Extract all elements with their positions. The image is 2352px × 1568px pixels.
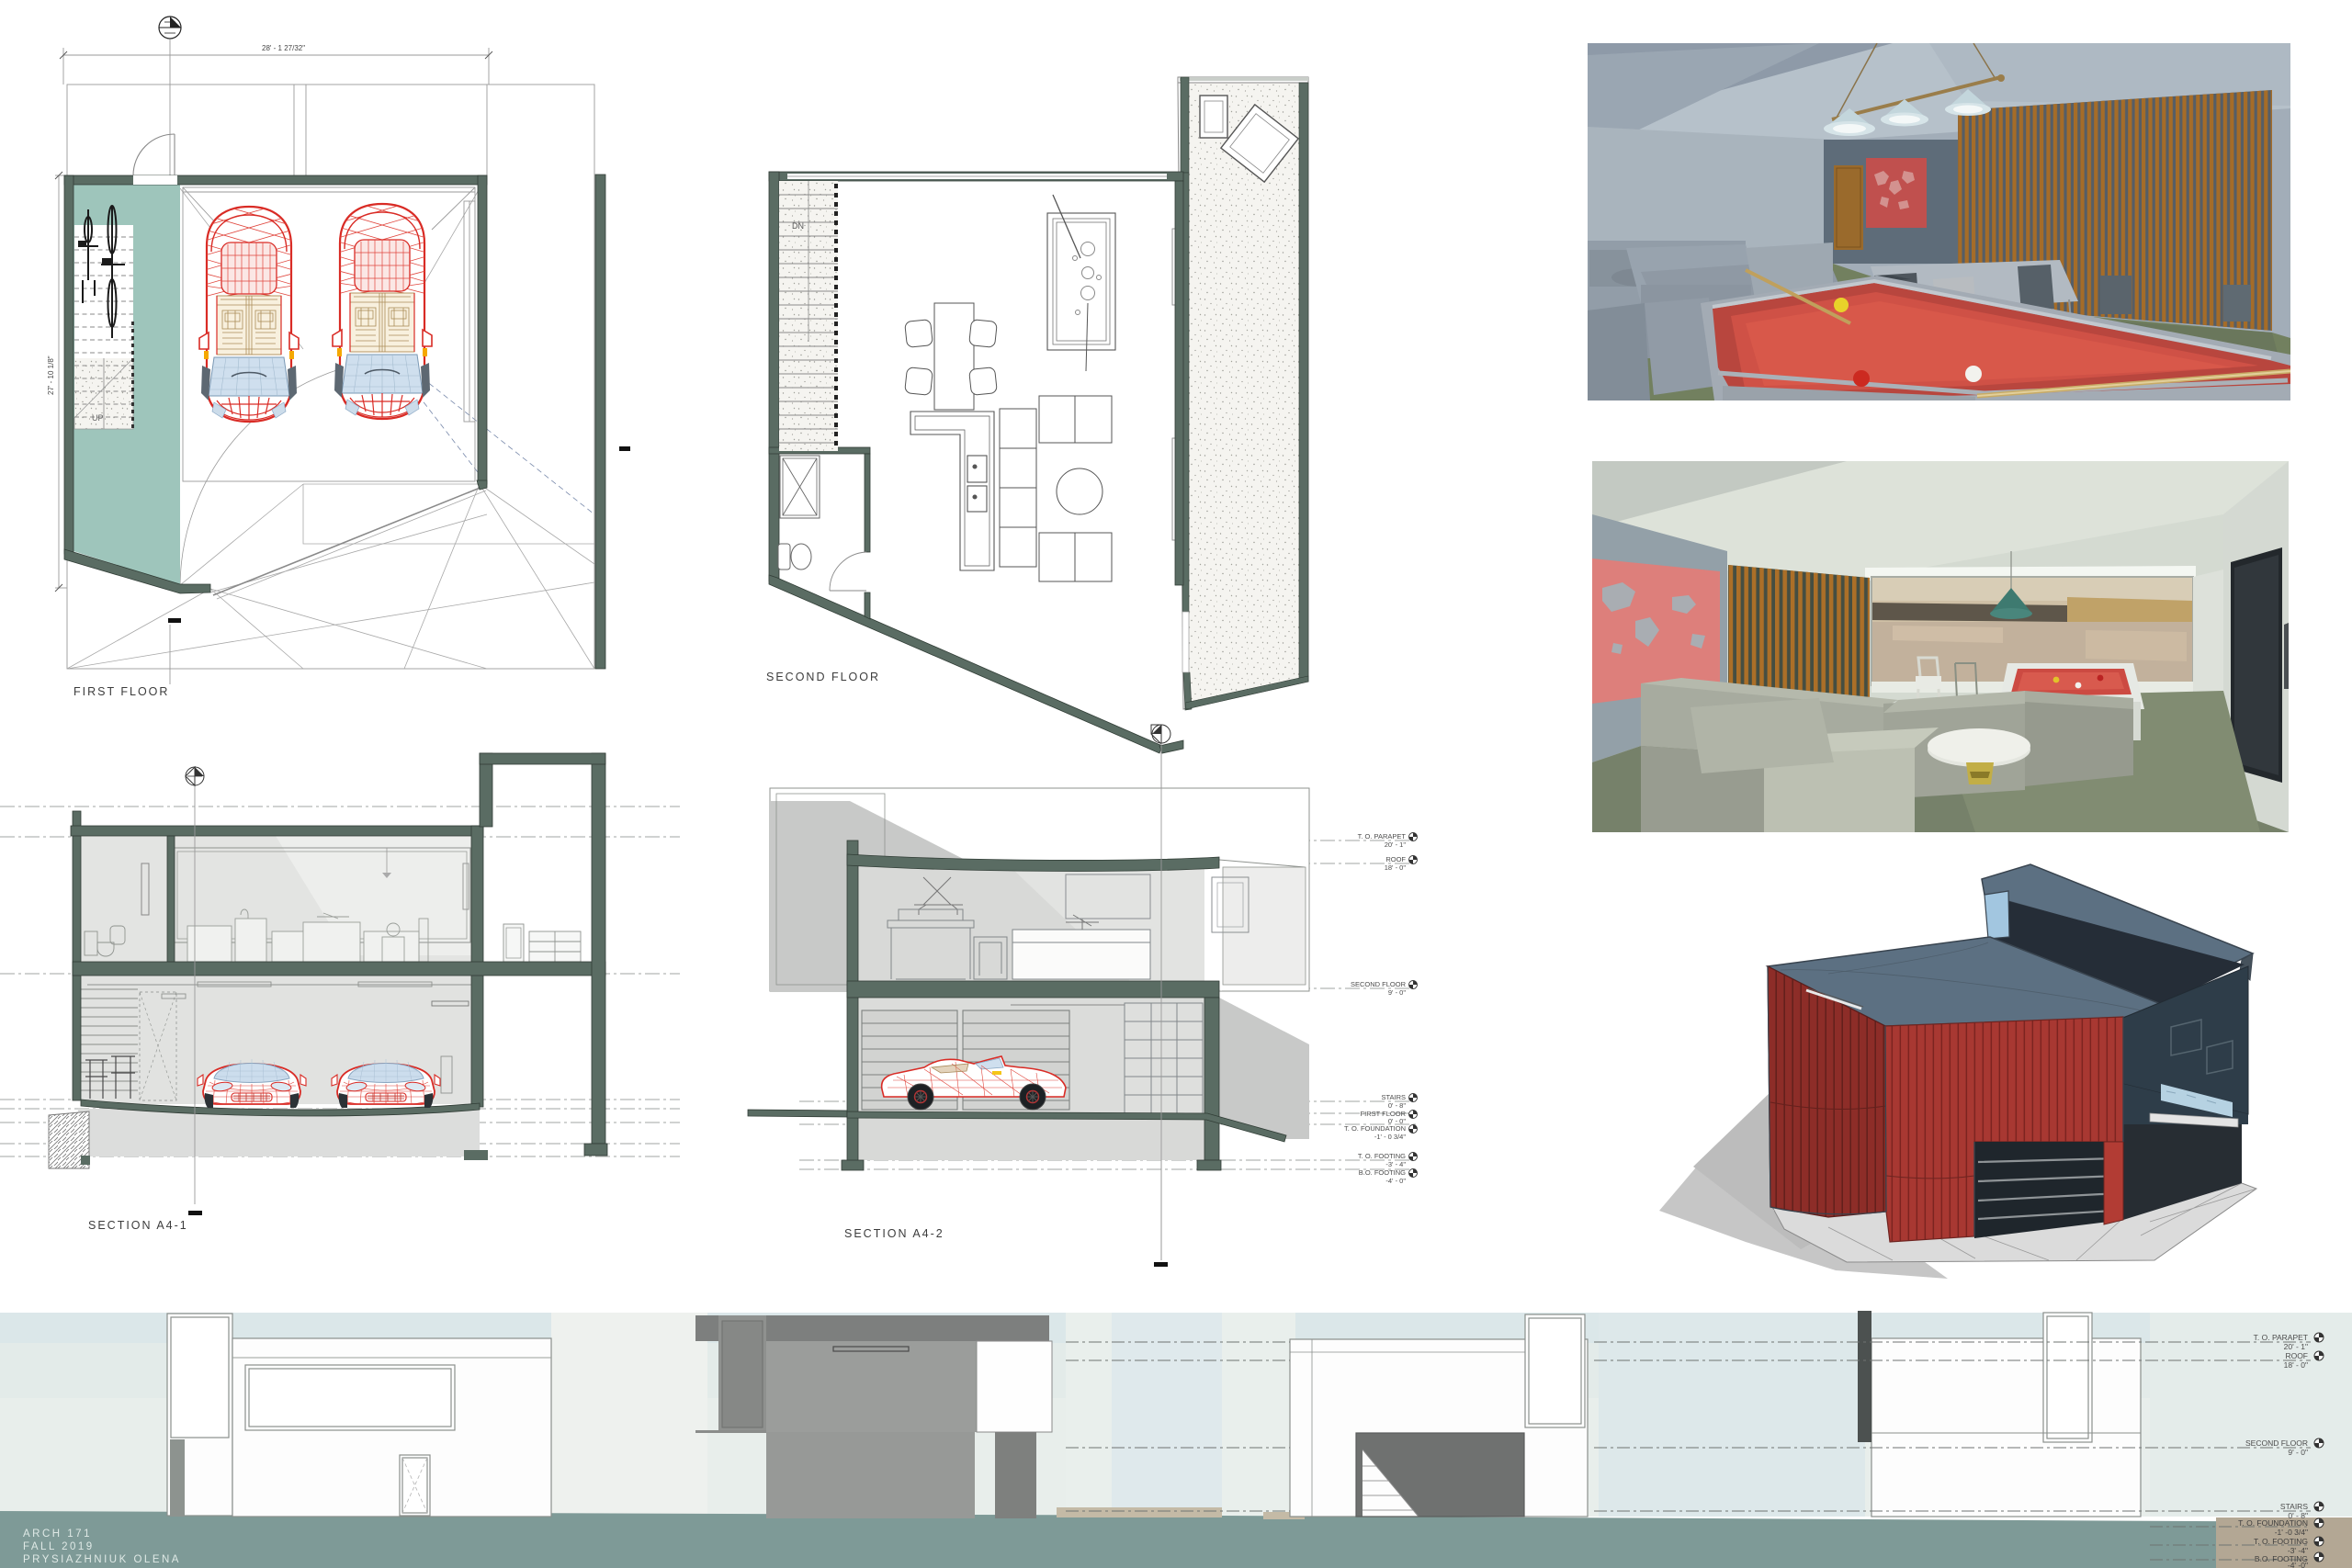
svg-text:STAIRS: STAIRS bbox=[1381, 1093, 1406, 1101]
svg-text:ROOF: ROOF bbox=[2285, 1351, 2308, 1360]
svg-text:9' - 0": 9' - 0" bbox=[1388, 988, 1406, 997]
svg-text:T. O. FOUNDATION: T. O. FOUNDATION bbox=[2238, 1518, 2308, 1528]
svg-text:SECOND FLOOR: SECOND FLOOR bbox=[2245, 1438, 2308, 1448]
svg-text:SECTION A4-1: SECTION A4-1 bbox=[88, 1219, 188, 1232]
svg-text:T. O. PARAPET: T. O. PARAPET bbox=[2254, 1333, 2308, 1342]
svg-text:ROOF: ROOF bbox=[1385, 855, 1406, 863]
svg-text:-1' -0 3/4": -1' -0 3/4" bbox=[2275, 1528, 2308, 1537]
svg-text:20' - 1": 20' - 1" bbox=[1385, 840, 1407, 849]
svg-text:STAIRS: STAIRS bbox=[2280, 1502, 2308, 1511]
svg-text:-4' - 0": -4' - 0" bbox=[1385, 1177, 1406, 1185]
svg-text:SECOND FLOOR: SECOND FLOOR bbox=[1351, 980, 1407, 988]
svg-text:FALL 2019: FALL 2019 bbox=[23, 1541, 95, 1552]
svg-text:DN: DN bbox=[792, 221, 804, 231]
svg-text:T. O. FOOTING: T. O. FOOTING bbox=[1358, 1152, 1406, 1160]
svg-text:T. O. FOOTING: T. O. FOOTING bbox=[2254, 1537, 2308, 1546]
svg-text:0' - 8": 0' - 8" bbox=[1388, 1101, 1406, 1110]
svg-text:T. O. FOUNDATION: T. O. FOUNDATION bbox=[1344, 1124, 1406, 1133]
svg-text:T. O. PARAPET: T. O. PARAPET bbox=[1358, 832, 1407, 840]
svg-text:-1' - 0 3/4": -1' - 0 3/4" bbox=[1374, 1133, 1406, 1141]
svg-text:9' - 0": 9' - 0" bbox=[2288, 1448, 2308, 1457]
svg-text:-3' - 4": -3' - 4" bbox=[1385, 1160, 1406, 1168]
svg-text:27' - 10 1/8": 27' - 10 1/8" bbox=[47, 355, 55, 395]
svg-text:18' - 0": 18' - 0" bbox=[1385, 863, 1407, 872]
svg-text:28' - 1 27/32": 28' - 1 27/32" bbox=[262, 44, 305, 52]
svg-text:UP: UP bbox=[92, 413, 104, 423]
svg-text:B.O. FOOTING: B.O. FOOTING bbox=[1359, 1168, 1406, 1177]
svg-text:18' - 0": 18' - 0" bbox=[2284, 1360, 2308, 1370]
svg-text:-4' -0": -4' -0" bbox=[2288, 1561, 2308, 1568]
svg-text:20' - 1": 20' - 1" bbox=[2284, 1342, 2308, 1351]
svg-text:ARCH 171: ARCH 171 bbox=[23, 1529, 92, 1540]
svg-text:SECTION A4-2: SECTION A4-2 bbox=[844, 1227, 944, 1240]
svg-text:PRYSIAZHNIUK OLENA: PRYSIAZHNIUK OLENA bbox=[23, 1554, 181, 1565]
svg-text:FIRST FLOOR: FIRST FLOOR bbox=[73, 685, 169, 698]
svg-text:SECOND FLOOR: SECOND FLOOR bbox=[766, 671, 880, 683]
